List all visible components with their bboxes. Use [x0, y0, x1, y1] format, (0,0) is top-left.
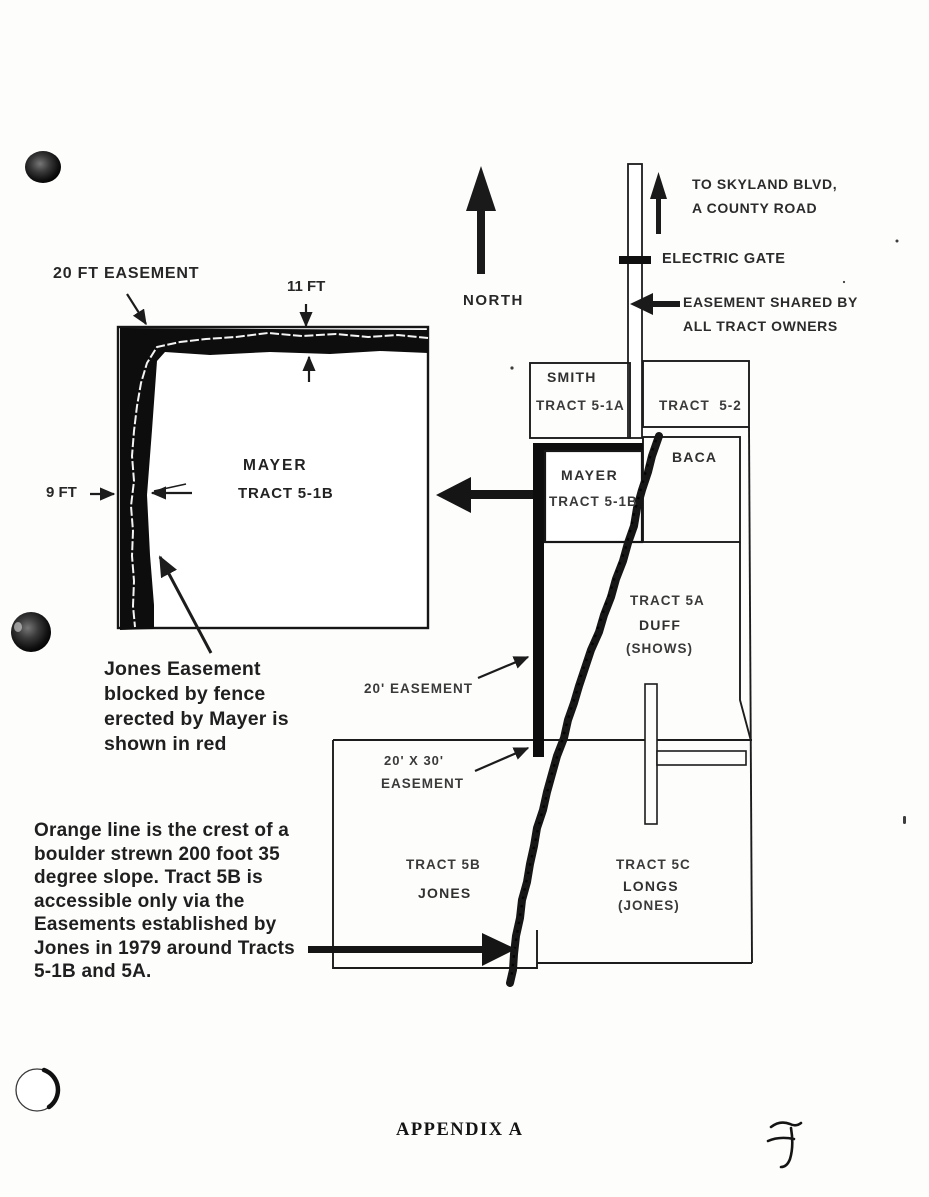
duff-tract-label: TRACT 5A — [630, 593, 705, 608]
map-label-arrows — [475, 657, 528, 771]
access-road — [619, 164, 680, 438]
note-line: erected by Mayer is — [104, 708, 289, 731]
tract-5b-label: TRACT 5B — [406, 857, 481, 872]
inset-mayer-owner-label: MAYER — [243, 457, 308, 475]
electric-gate-symbol — [619, 256, 651, 264]
para-line: Orange line is the crest of a — [34, 820, 289, 842]
shared-easement-label-line2: ALL TRACT OWNERS — [683, 318, 838, 334]
easement-20-label: 20' EASEMENT — [364, 681, 473, 696]
north-label: NORTH — [463, 292, 524, 309]
easement-20x30-label-line1: 20' X 30' — [384, 753, 444, 768]
tract-5c-label: TRACT 5C — [616, 857, 691, 872]
longs-owner-label: LONGS — [623, 878, 679, 894]
jones-owner-label: JONES — [418, 885, 471, 901]
hole-punch-top — [25, 151, 61, 183]
baca-owner-label: BACA — [672, 449, 717, 465]
easement-20-strip — [533, 443, 643, 757]
appendix-title: APPENDIX A — [396, 1120, 524, 1141]
para-line: 5-1B and 5A. — [34, 961, 152, 983]
note-line: blocked by fence — [104, 683, 265, 706]
easement-20x30-label-line2: EASEMENT — [381, 776, 464, 791]
smith-tract-label: TRACT 5-1A — [536, 398, 625, 413]
shared-easement-label-line1: EASEMENT SHARED BY — [683, 294, 858, 310]
hole-punch-middle — [11, 612, 51, 652]
note-line: Jones Easement — [104, 658, 261, 681]
corridor-easement — [645, 684, 746, 824]
handwritten-f-mark — [768, 1123, 801, 1167]
scanned-plat-page: 20 FT EASEMENT 11 FT 9 FT MAYER TRACT 5-… — [0, 0, 929, 1197]
hole-punch-bottom-ring — [16, 1069, 58, 1111]
para-line: boulder strewn 200 foot 35 — [34, 844, 280, 866]
mayer-owner-label: MAYER — [561, 467, 618, 483]
tract-5-2-label: TRACT 5-2 — [659, 398, 742, 413]
tract-5-2-box — [643, 361, 749, 427]
smith-owner-label: SMITH — [547, 369, 597, 385]
skyland-blvd-label-line1: TO SKYLAND BLVD, — [692, 176, 837, 192]
inset-20ft-easement-label: 20 FT EASEMENT — [53, 265, 199, 283]
inset-9ft-label: 9 FT — [46, 484, 77, 501]
skyland-blvd-label-line2: A COUNTY ROAD — [692, 200, 817, 216]
para-line: degree slope. Tract 5B is — [34, 867, 263, 889]
para-line: Jones in 1979 around Tracts — [34, 938, 295, 960]
para-line: Easements established by — [34, 914, 276, 936]
inset-mayer-tract-label: TRACT 5-1B — [238, 485, 334, 502]
north-arrow — [466, 166, 496, 274]
detail-callout-arrow — [436, 477, 538, 513]
para-line: accessible only via the — [34, 891, 245, 913]
duff-owner-label: DUFF — [639, 617, 681, 633]
note-line: shown in red — [104, 733, 227, 756]
mayer-tract-label: TRACT 5-1B — [549, 494, 638, 509]
slope-note-arrow — [308, 933, 516, 966]
duff-note-label: (SHOWS) — [626, 641, 693, 656]
inset-11ft-label: 11 FT — [287, 278, 325, 295]
electric-gate-label: ELECTRIC GATE — [662, 251, 786, 267]
longs-note-label: (JONES) — [618, 898, 680, 913]
